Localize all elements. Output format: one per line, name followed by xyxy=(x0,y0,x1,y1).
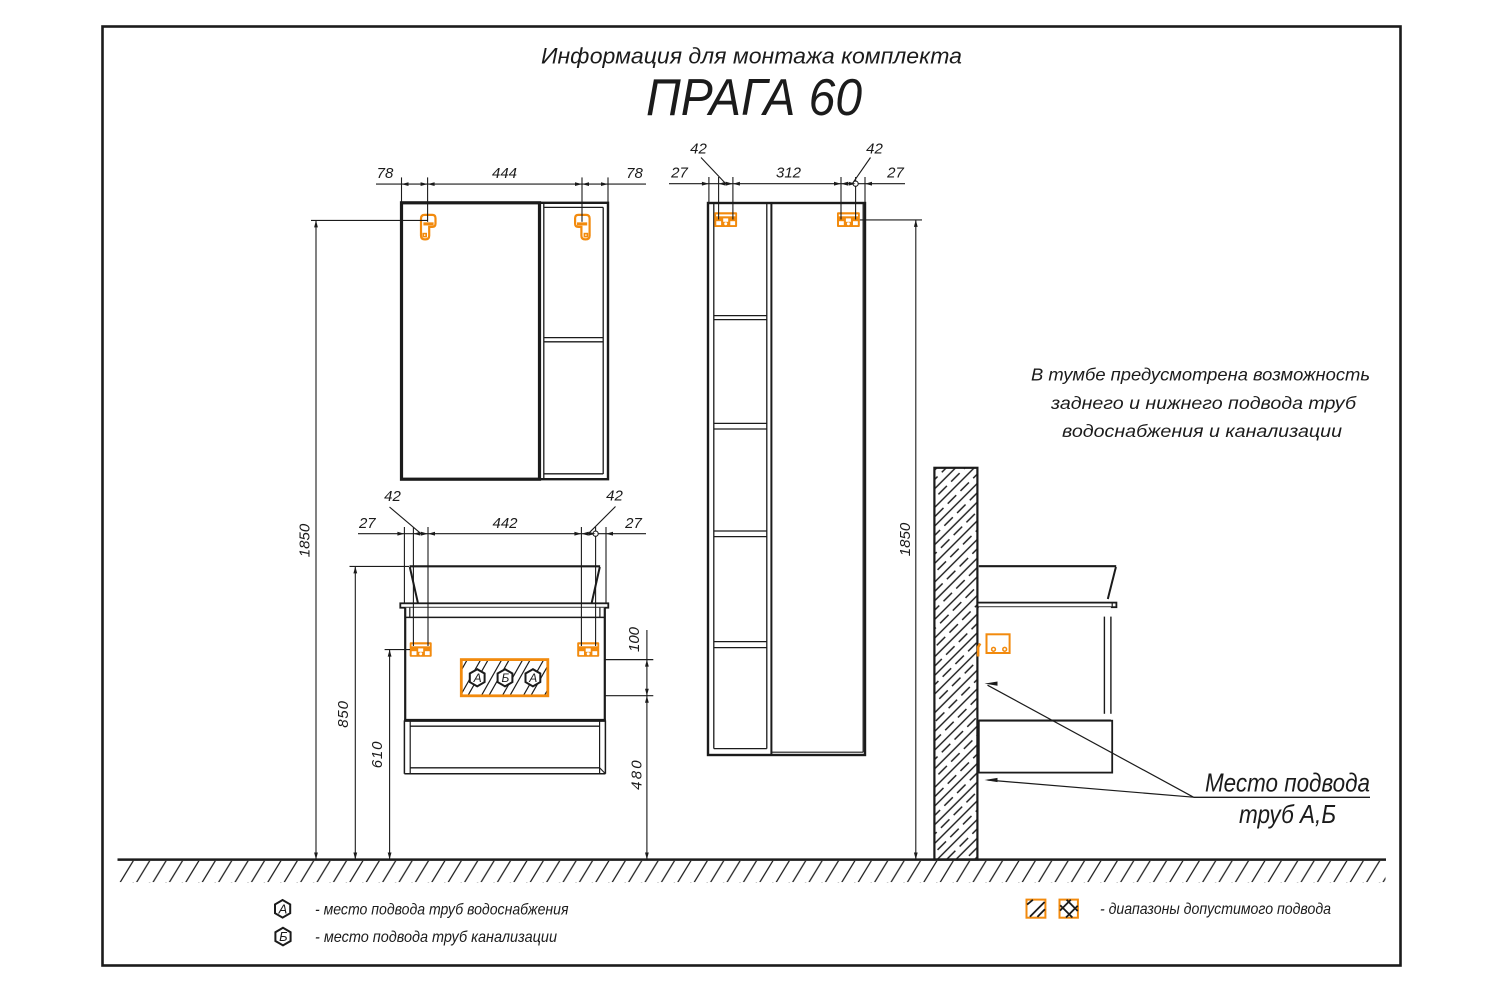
svg-text:27: 27 xyxy=(624,515,642,532)
svg-text:78: 78 xyxy=(626,165,643,182)
svg-text:А: А xyxy=(278,901,288,916)
svg-text:1850: 1850 xyxy=(297,523,314,557)
svg-text:850: 850 xyxy=(335,700,352,727)
svg-text:Место подвода: Место подвода xyxy=(1205,768,1370,798)
svg-text:Б: Б xyxy=(279,929,288,944)
svg-text:78: 78 xyxy=(377,165,394,182)
svg-text:27: 27 xyxy=(670,165,688,182)
svg-text:водоснабжения и канализации: водоснабжения и канализации xyxy=(1062,421,1342,441)
svg-text:Б: Б xyxy=(501,671,509,685)
svg-text:42: 42 xyxy=(866,141,883,158)
svg-text:Информация для монтажа комп: Информация для монтажа комплекта xyxy=(541,44,962,69)
svg-text:100: 100 xyxy=(626,626,643,652)
svg-text:312: 312 xyxy=(776,165,802,182)
svg-text:480: 480 xyxy=(629,758,646,790)
svg-text:- диапазоны допустимого подво: - диапазоны допустимого подвода xyxy=(1100,901,1331,918)
svg-text:- место подвода труб канализа: - место подвода труб канализации xyxy=(315,929,557,946)
svg-text:442: 442 xyxy=(492,515,518,532)
svg-text:610: 610 xyxy=(369,741,386,768)
svg-text:1850: 1850 xyxy=(897,522,914,556)
svg-text:труб А,Б: труб А,Б xyxy=(1239,799,1336,829)
svg-text:В тумбе предусмотрена возмо: В тумбе предусмотрена возможность xyxy=(1031,365,1370,385)
svg-text:А: А xyxy=(473,671,482,685)
svg-text:27: 27 xyxy=(358,515,376,532)
svg-text:27: 27 xyxy=(886,165,904,182)
svg-text:42: 42 xyxy=(690,141,707,158)
svg-text:42: 42 xyxy=(384,488,401,505)
svg-text:ПРАГА 60: ПРАГА 60 xyxy=(646,69,862,127)
svg-text:444: 444 xyxy=(492,165,517,182)
svg-text:А: А xyxy=(528,671,537,685)
svg-text:заднего и нижнего подвода: заднего и нижнего подвода труб xyxy=(1050,393,1357,413)
svg-text:- место подвода труб водоснаб: - место подвода труб водоснабжения xyxy=(315,902,569,919)
svg-text:42: 42 xyxy=(606,488,623,505)
